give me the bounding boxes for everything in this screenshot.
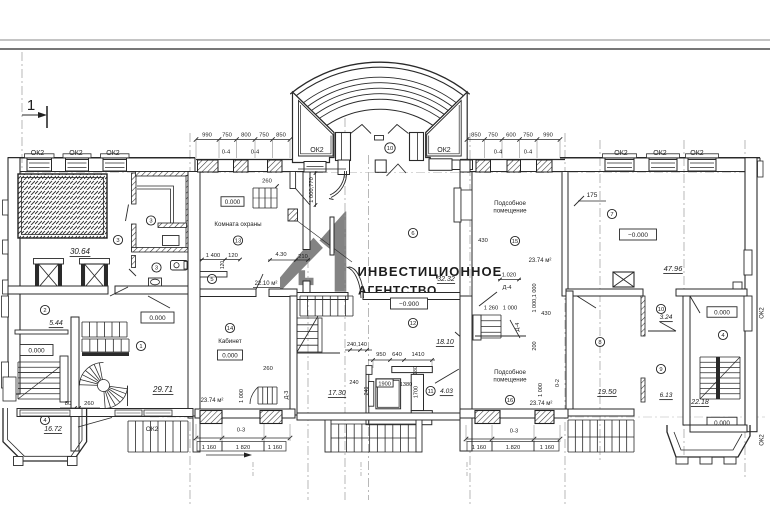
svg-text:0.000: 0.000	[28, 347, 45, 354]
svg-text:ОК2: ОК2	[106, 150, 120, 157]
svg-text:12: 12	[410, 321, 416, 327]
svg-text:Кабинет: Кабинет	[218, 338, 242, 345]
svg-text:260: 260	[262, 179, 272, 185]
svg-text:0.000: 0.000	[225, 199, 241, 206]
svg-text:1 000: 1 000	[538, 383, 544, 397]
svg-text:помещение: помещение	[493, 208, 527, 215]
svg-text:175: 175	[587, 192, 598, 199]
svg-text:30.64: 30.64	[70, 247, 91, 256]
svg-text:1 160: 1 160	[472, 445, 487, 451]
svg-text:990: 990	[202, 133, 212, 139]
svg-text:ОК2: ОК2	[69, 150, 83, 157]
svg-text:1 000,770: 1 000,770	[309, 177, 315, 203]
svg-text:3: 3	[116, 238, 119, 244]
svg-text:ОК2: ОК2	[690, 150, 704, 157]
svg-text:ОК2: ОК2	[653, 150, 667, 157]
svg-text:0.000: 0.000	[222, 352, 238, 359]
svg-text:210: 210	[298, 254, 308, 260]
svg-text:ОК2: ОК2	[760, 307, 766, 319]
svg-text:ОК2: ОК2	[614, 150, 628, 157]
svg-text:260: 260	[84, 401, 94, 407]
svg-text:180: 180	[413, 366, 419, 375]
svg-text:120: 120	[220, 261, 226, 270]
svg-text:1 160: 1 160	[540, 445, 555, 451]
svg-text:0-3: 0-3	[510, 429, 518, 435]
svg-text:6.13: 6.13	[660, 392, 673, 399]
svg-text:750: 750	[488, 133, 498, 139]
svg-text:6: 6	[411, 231, 414, 237]
svg-text:0.000: 0.000	[149, 315, 166, 322]
svg-text:1410: 1410	[412, 352, 425, 358]
svg-text:14: 14	[227, 326, 234, 332]
svg-text:1 000,1 000: 1 000,1 000	[532, 283, 538, 312]
svg-text:3: 3	[149, 219, 152, 225]
svg-text:2: 2	[43, 308, 46, 314]
svg-text:−0.900: −0.900	[399, 301, 419, 308]
svg-text:18.10: 18.10	[436, 339, 454, 346]
svg-text:1900: 1900	[378, 381, 390, 387]
svg-text:16.72: 16.72	[44, 426, 62, 433]
svg-text:120: 120	[228, 253, 238, 259]
svg-text:Комната охраны: Комната охраны	[214, 221, 262, 228]
svg-text:16: 16	[507, 398, 513, 404]
svg-text:1 000: 1 000	[503, 306, 518, 312]
svg-text:750: 750	[259, 133, 269, 139]
svg-text:1 260: 1 260	[484, 306, 499, 312]
svg-text:1 160: 1 160	[268, 445, 283, 451]
svg-text:−0.000: −0.000	[628, 232, 648, 239]
svg-text:Подсобное: Подсобное	[494, 200, 526, 207]
svg-text:ОК2: ОК2	[760, 434, 766, 446]
svg-text:47.96: 47.96	[664, 264, 684, 273]
svg-text:240,140: 240,140	[347, 342, 367, 348]
svg-text:3.24: 3.24	[660, 314, 673, 321]
svg-text:1380: 1380	[400, 382, 412, 388]
svg-text:7: 7	[610, 212, 613, 218]
svg-text:1: 1	[27, 97, 35, 114]
svg-text:10: 10	[658, 307, 664, 313]
svg-text:23.74 м²: 23.74 м²	[529, 258, 552, 264]
svg-text:1: 1	[139, 344, 142, 350]
svg-text:240: 240	[349, 380, 358, 386]
svg-text:Подсобное: Подсобное	[494, 369, 526, 376]
svg-text:260: 260	[263, 366, 273, 372]
svg-text:ОК2: ОК2	[31, 150, 45, 157]
svg-text:600: 600	[506, 133, 516, 139]
svg-text:200: 200	[532, 341, 538, 350]
svg-text:640: 640	[392, 352, 402, 358]
svg-text:1.020: 1.020	[502, 273, 517, 279]
svg-text:ОК2: ОК2	[437, 147, 451, 154]
svg-text:11: 11	[428, 389, 434, 395]
svg-text:850: 850	[276, 133, 286, 139]
svg-text:Д-4: Д-4	[502, 285, 512, 291]
svg-text:23.74 м²: 23.74 м²	[530, 401, 553, 407]
svg-text:ОК2: ОК2	[310, 147, 324, 154]
svg-text:0-4: 0-4	[494, 150, 503, 156]
svg-text:0-4: 0-4	[251, 150, 260, 156]
svg-text:1 820: 1 820	[236, 445, 251, 451]
svg-text:1.820: 1.820	[506, 445, 521, 451]
svg-text:15: 15	[512, 239, 518, 245]
svg-text:0-4: 0-4	[524, 150, 533, 156]
svg-text:4.03: 4.03	[440, 388, 453, 395]
svg-text:0-4: 0-4	[222, 150, 231, 156]
svg-text:4.30: 4.30	[275, 252, 286, 258]
svg-text:17.30: 17.30	[328, 390, 346, 397]
svg-text:800: 800	[241, 133, 251, 139]
svg-text:9: 9	[659, 367, 662, 373]
svg-text:5: 5	[210, 277, 213, 283]
svg-text:0.000: 0.000	[714, 309, 730, 316]
svg-text:1 000: 1 000	[239, 389, 245, 403]
svg-text:1 160: 1 160	[202, 445, 217, 451]
svg-text:750: 750	[523, 133, 533, 139]
svg-text:19.50: 19.50	[598, 387, 618, 396]
svg-text:0-2: 0-2	[555, 379, 561, 387]
svg-text:22.18: 22.18	[690, 399, 709, 406]
svg-text:Д-3: Д-3	[284, 391, 290, 400]
svg-text:240: 240	[364, 387, 370, 396]
svg-text:80: 80	[65, 401, 71, 407]
svg-text:850: 850	[471, 133, 481, 139]
svg-text:750: 750	[222, 133, 232, 139]
svg-text:29.71: 29.71	[152, 385, 173, 394]
svg-text:3: 3	[155, 266, 158, 272]
svg-text:1700: 1700	[414, 386, 420, 398]
svg-text:1 400: 1 400	[206, 253, 221, 259]
svg-text:помещение: помещение	[493, 377, 527, 384]
svg-text:23.74 м²: 23.74 м²	[201, 398, 224, 404]
svg-text:ОК2: ОК2	[146, 426, 159, 433]
svg-text:990: 990	[543, 133, 553, 139]
svg-text:430: 430	[478, 238, 488, 244]
svg-text:8: 8	[598, 340, 601, 346]
svg-text:ИНВЕСТИЦИОННОЕ: ИНВЕСТИЦИОННОЕ	[358, 264, 503, 279]
svg-text:10: 10	[387, 146, 393, 152]
svg-text:0-3: 0-3	[237, 428, 245, 434]
svg-text:5.44: 5.44	[49, 320, 63, 327]
svg-text:13: 13	[235, 239, 241, 245]
svg-text:32.32: 32.32	[437, 276, 455, 283]
svg-text:430: 430	[541, 311, 551, 317]
svg-text:950: 950	[376, 352, 386, 358]
